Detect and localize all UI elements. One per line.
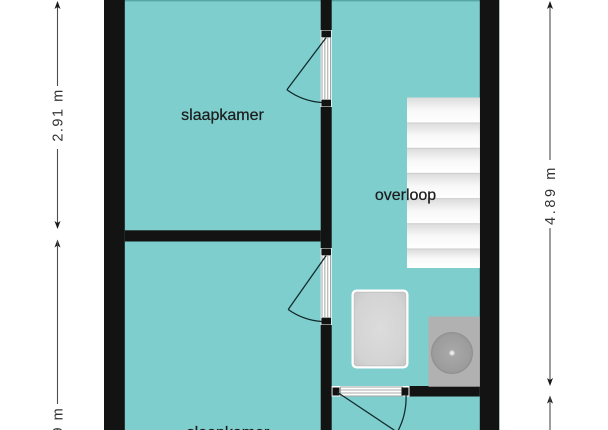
- svg-text:2.69 m: 2.69 m: [51, 407, 67, 430]
- svg-text:4.89 m: 4.89 m: [543, 165, 559, 225]
- svg-text:overloop: overloop: [375, 187, 436, 204]
- svg-text:slaapkamer: slaapkamer: [187, 425, 270, 430]
- svg-text:slaapkamer: slaapkamer: [181, 107, 264, 124]
- svg-text:2.91 m: 2.91 m: [51, 88, 67, 141]
